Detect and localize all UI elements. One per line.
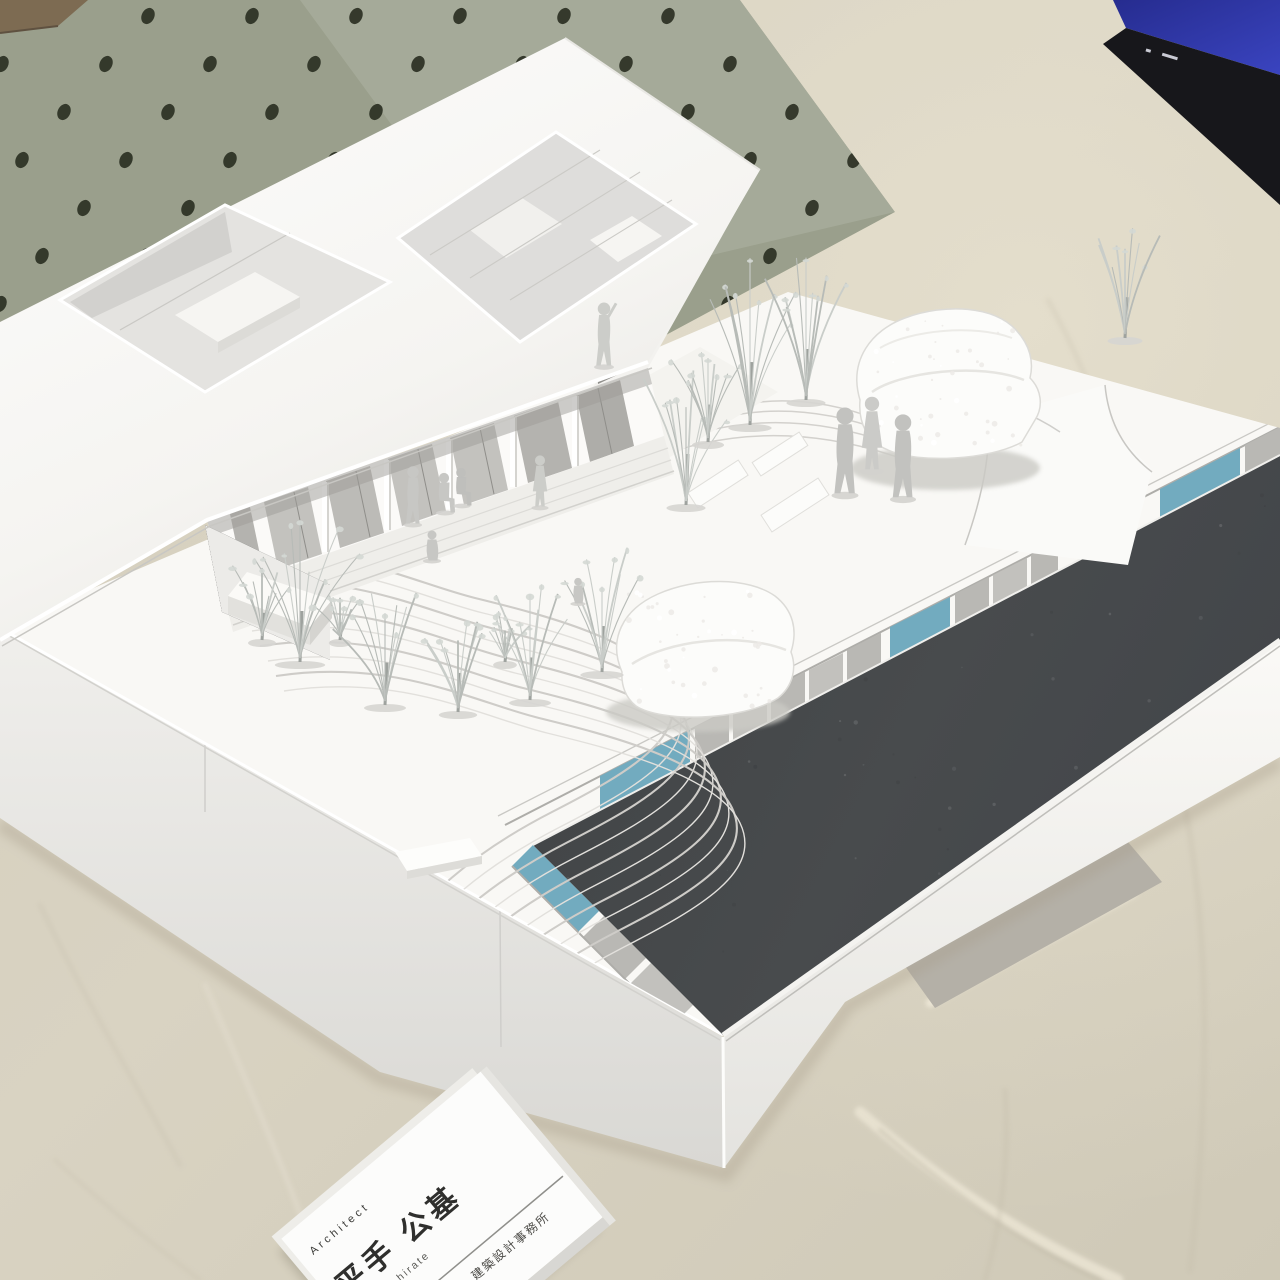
- scene: Architect 平手 公基 mimoto hirate 建築設計事務所: [0, 0, 1280, 1280]
- photo-of-architecture-model: Architect 平手 公基 mimoto hirate 建築設計事務所: [0, 0, 1280, 1280]
- foam-car-driveway: [850, 309, 1040, 490]
- base-corner-edge: [723, 1037, 724, 1168]
